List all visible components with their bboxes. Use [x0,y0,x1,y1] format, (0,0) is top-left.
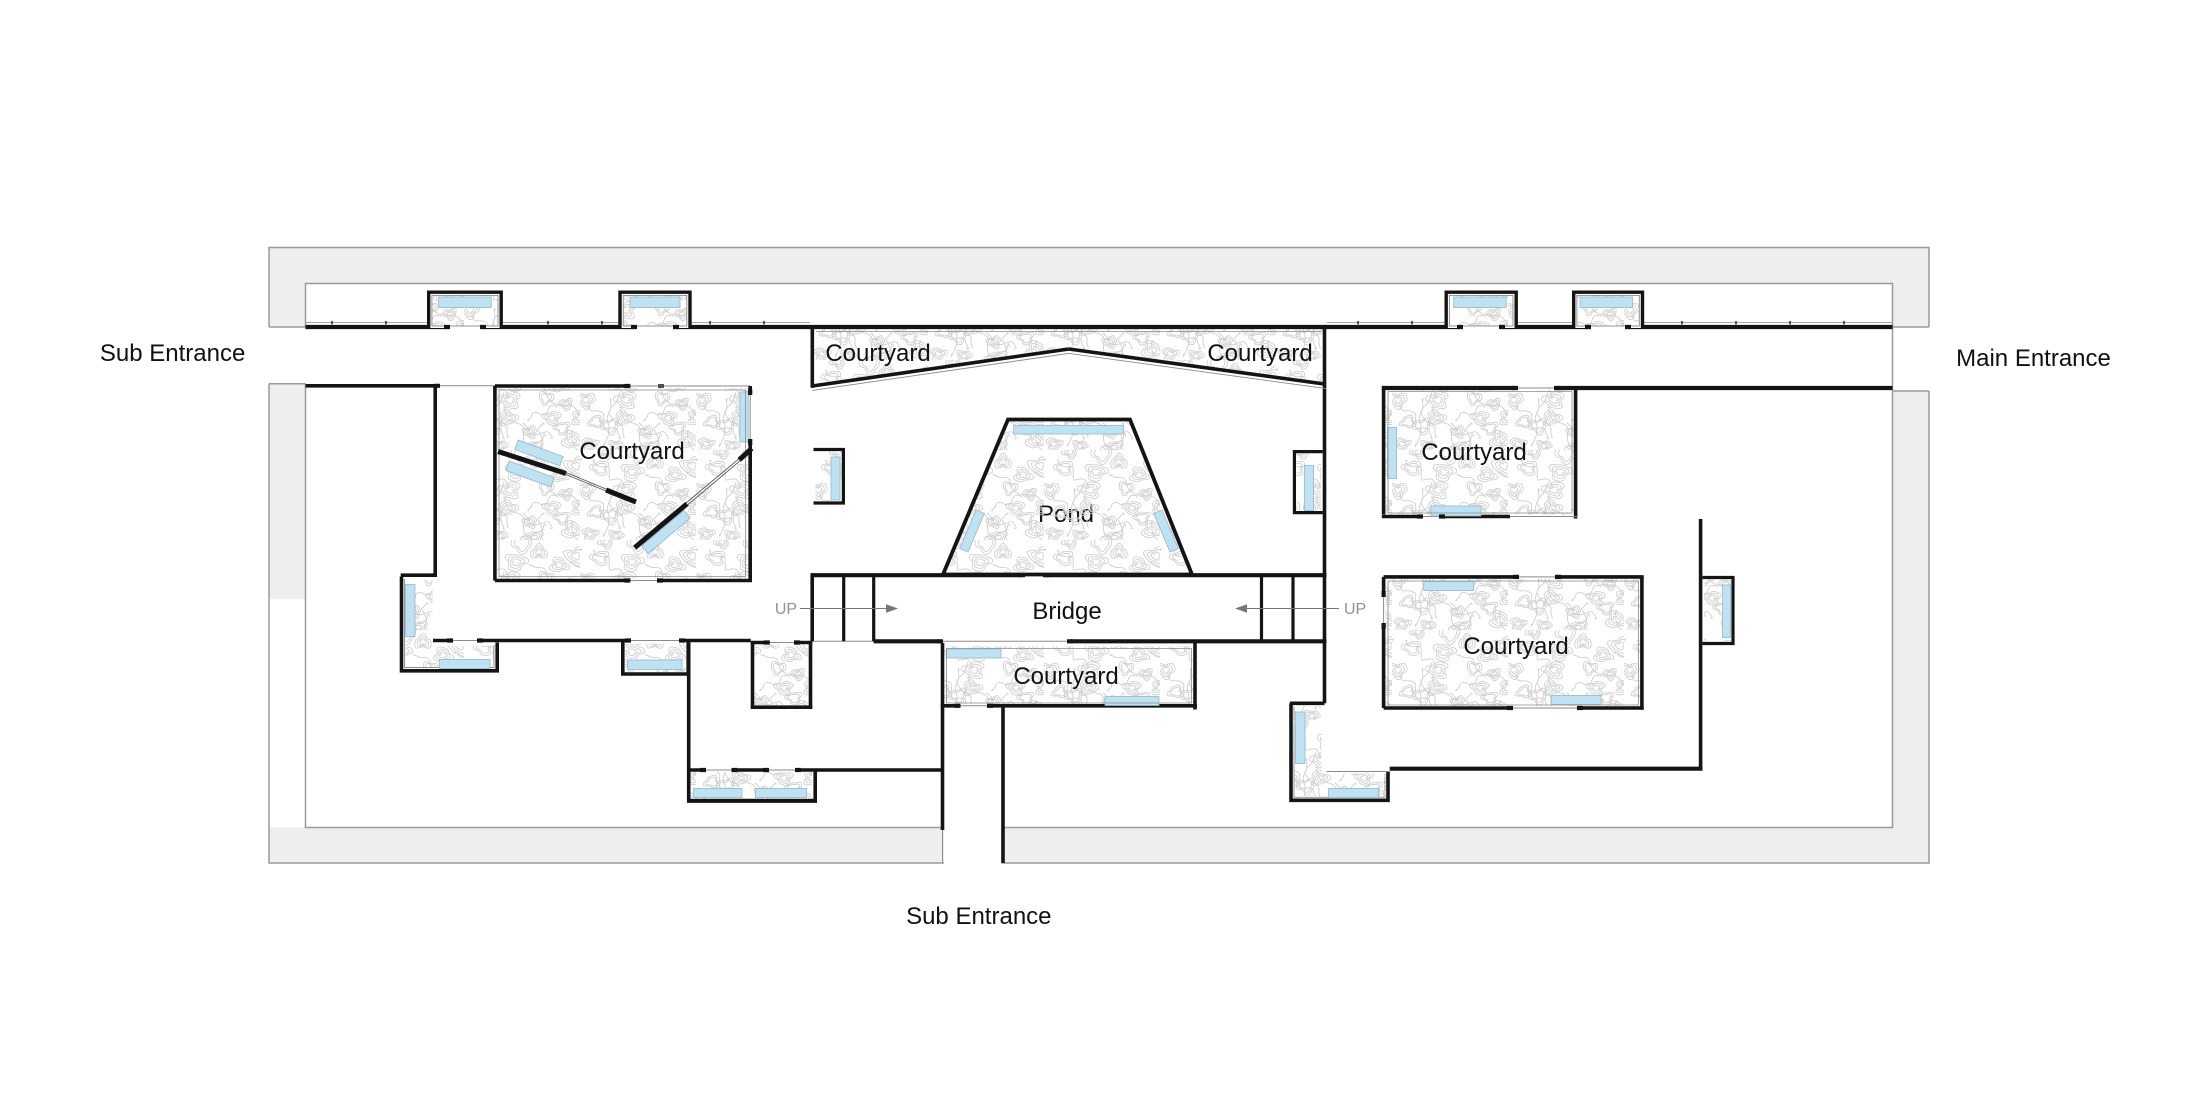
svg-text:Courtyard: Courtyard [1463,633,1568,660]
svg-text:Courtyard: Courtyard [825,340,930,367]
svg-text:UP: UP [775,601,797,618]
svg-text:Courtyard: Courtyard [579,438,684,465]
svg-text:Bridge: Bridge [1032,598,1101,625]
svg-text:Courtyard: Courtyard [1207,340,1312,367]
svg-text:UP: UP [1344,601,1366,618]
svg-text:Courtyard: Courtyard [1013,663,1118,690]
svg-text:Sub Entrance: Sub Entrance [100,340,245,367]
svg-text:Courtyard: Courtyard [1421,439,1526,466]
svg-text:Sub Entrance: Sub Entrance [906,903,1051,930]
svg-text:Main Entrance: Main Entrance [1956,345,2111,372]
